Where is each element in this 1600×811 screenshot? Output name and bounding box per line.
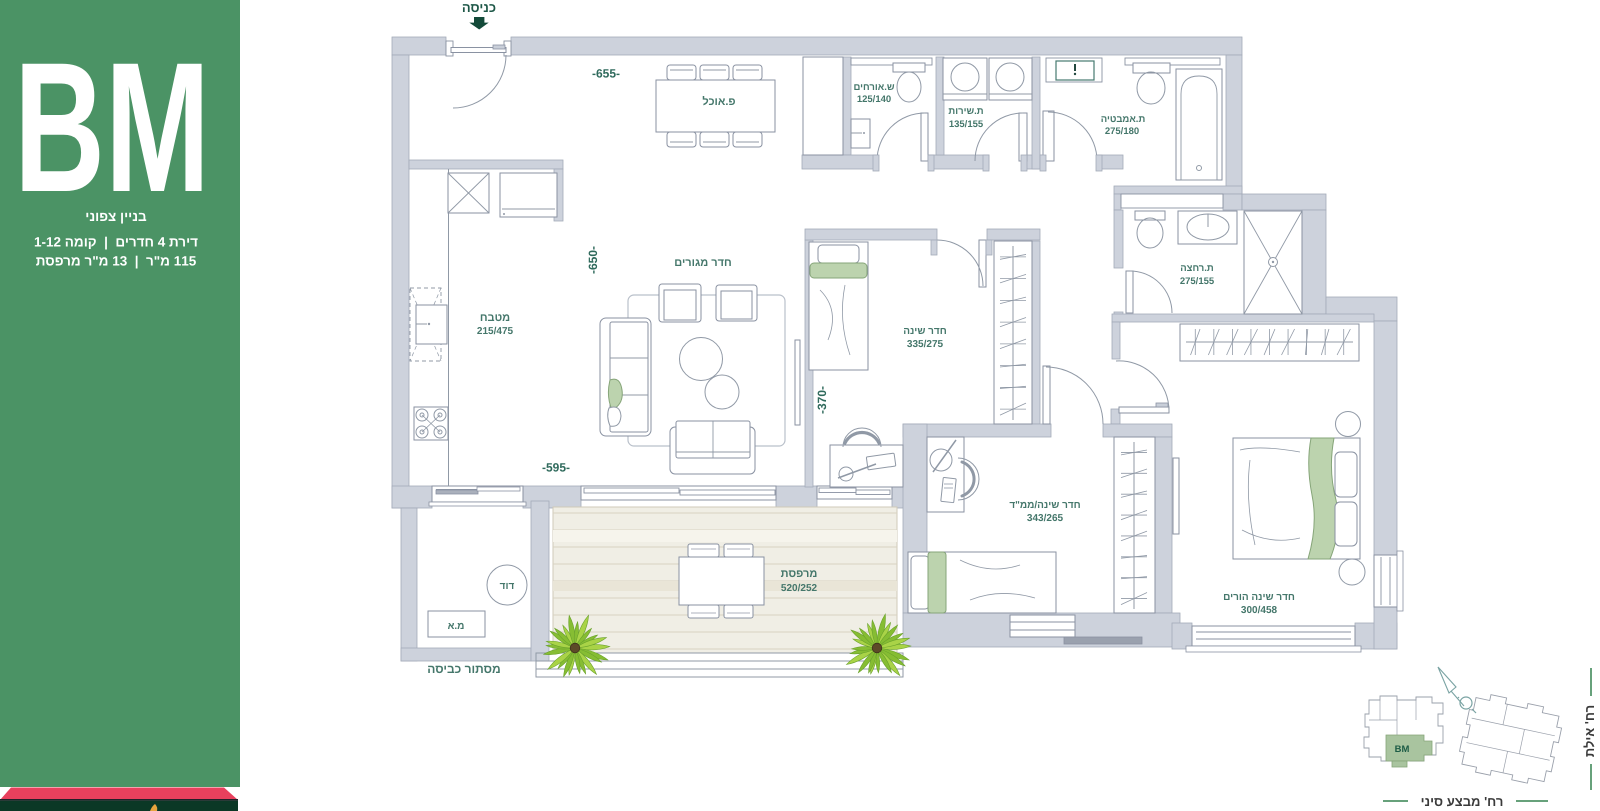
- svg-text:-595-: -595-: [542, 461, 570, 475]
- svg-text:בניין צפוני: בניין צפוני: [85, 209, 147, 224]
- svg-text:מטבח: מטבח: [480, 312, 510, 324]
- svg-text:דירת 4 חדרים | קומה 1-12: דירת 4 חדרים | קומה 1-12: [34, 235, 198, 250]
- svg-text:125/140: 125/140: [857, 94, 891, 105]
- svg-text:ש.אורחים: ש.אורחים: [854, 82, 895, 93]
- svg-text:343/265: 343/265: [1027, 513, 1064, 524]
- svg-text:-650-: -650-: [586, 246, 600, 274]
- svg-text:BM: BM: [14, 25, 210, 231]
- svg-text:חדר שינה הורים: חדר שינה הורים: [1223, 592, 1295, 603]
- svg-text:-370-: -370-: [815, 386, 829, 414]
- svg-text:פ.אוכל: פ.אוכל: [702, 96, 735, 108]
- svg-text:ת.אמבטיה: ת.אמבטיה: [1101, 114, 1146, 125]
- svg-text:מרפסת: מרפסת: [781, 568, 818, 580]
- svg-text:מ.א: מ.א: [448, 621, 465, 632]
- svg-text:מסתור כביסה: מסתור כביסה: [427, 662, 501, 676]
- svg-text:215/475: 215/475: [477, 326, 514, 337]
- svg-text:ת.שירות: ת.שירות: [948, 106, 983, 117]
- svg-text:-655-: -655-: [592, 67, 620, 81]
- svg-text:חדר שינה: חדר שינה: [903, 326, 947, 337]
- svg-text:520/252: 520/252: [781, 583, 818, 594]
- svg-text:רח' אילת: רח' אילת: [1582, 705, 1597, 757]
- svg-text:חדר שינה/ממ"ד: חדר שינה/ממ"ד: [1009, 500, 1080, 511]
- svg-text:275/180: 275/180: [1105, 126, 1139, 137]
- svg-text:335/275: 335/275: [907, 339, 944, 350]
- svg-text:דוד: דוד: [500, 581, 515, 592]
- svg-text:300/458: 300/458: [1241, 605, 1278, 616]
- svg-text:115 מ"ר | 13 מ"ר מרפסת: 115 מ"ר | 13 מ"ר מרפסת: [36, 254, 197, 269]
- svg-text:BM: BM: [1395, 744, 1410, 755]
- svg-text:רח' מבצע סיני: רח' מבצע סיני: [1421, 794, 1504, 809]
- svg-text:כניסה: כניסה: [462, 0, 496, 15]
- svg-text:ת.רחצה: ת.רחצה: [1180, 263, 1214, 274]
- svg-text:חדר מגורים: חדר מגורים: [674, 257, 731, 269]
- svg-text:135/155: 135/155: [949, 119, 984, 130]
- svg-text:275/155: 275/155: [1180, 276, 1215, 287]
